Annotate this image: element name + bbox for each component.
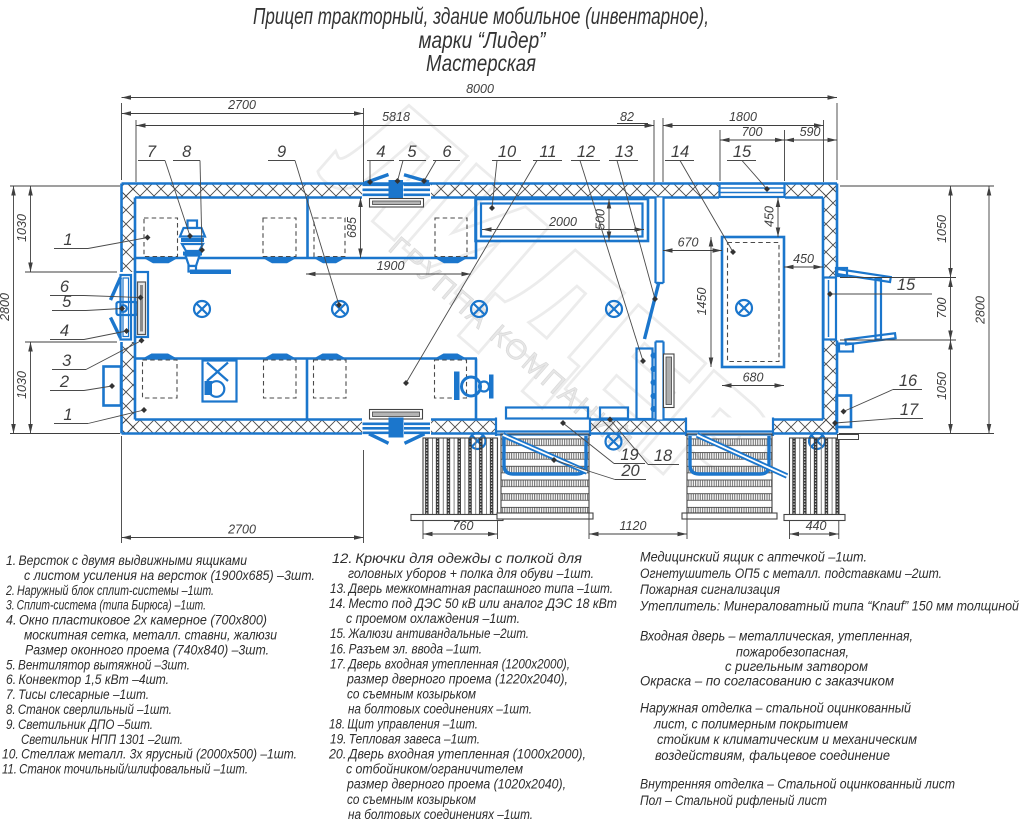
svg-text:1900: 1900 xyxy=(377,259,405,273)
svg-text:11. Станок точильный/шлифоваль: 11. Станок точильный/шлифовальный –1шт. xyxy=(2,762,248,778)
svg-text:1. Версток с двумя выдвижными: 1. Версток с двумя выдвижными ящиками xyxy=(6,553,247,569)
svg-text:с листом усиления на версток (: с листом усиления на версток (1900х685) … xyxy=(24,568,315,584)
svg-text:7. Тисы слесарные –1шт.: 7. Тисы слесарные –1шт. xyxy=(6,687,149,703)
svg-text:Мастерская: Мастерская xyxy=(426,50,536,76)
svg-text:лист, с полимерным покрытием: лист, с полимерным покрытием xyxy=(653,717,848,733)
svg-text:Размер оконного проема (740х84: Размер оконного проема (740х840) –3шт. xyxy=(25,642,269,658)
svg-text:8000: 8000 xyxy=(466,82,494,96)
svg-text:Прицеп тракторный, здание моби: Прицеп тракторный, здание мобильное (инв… xyxy=(253,3,709,29)
svg-text:4: 4 xyxy=(376,143,385,161)
svg-text:20. Дверь входная утепленная (: 20. Дверь входная утепленная (1000х2000)… xyxy=(328,747,586,763)
svg-text:2800: 2800 xyxy=(0,293,12,322)
svg-text:18. Щит управления –1шт.: 18. Щит управления –1шт. xyxy=(329,717,478,733)
svg-text:1030: 1030 xyxy=(15,371,29,399)
svg-text:1120: 1120 xyxy=(620,519,647,533)
svg-text:Окраска – по согласованию с за: Окраска – по согласованию с заказчиком xyxy=(640,674,894,690)
svg-text:4. Окно пластиковое 2х камерно: 4. Окно пластиковое 2х камерное (700х800… xyxy=(6,613,267,629)
svg-text:440: 440 xyxy=(806,519,827,533)
svg-text:13: 13 xyxy=(615,143,634,161)
svg-text:1: 1 xyxy=(63,406,72,424)
svg-text:5: 5 xyxy=(62,293,72,311)
svg-text:6. Конвектор 1,5 кВт –4шт.: 6. Конвектор 1,5 кВт –4шт. xyxy=(6,672,169,688)
svg-text:20: 20 xyxy=(620,462,640,480)
svg-text:1800: 1800 xyxy=(729,110,757,124)
svg-text:670: 670 xyxy=(678,236,699,250)
svg-text:82: 82 xyxy=(620,110,634,124)
svg-text:5818: 5818 xyxy=(382,110,410,124)
svg-text:Медицинский ящик с аптечкой –1: Медицинский ящик с аптечкой –1шт. xyxy=(640,550,867,566)
svg-text:Пожарная сигнализация: Пожарная сигнализация xyxy=(640,582,780,598)
svg-text:700: 700 xyxy=(742,125,763,139)
svg-text:18: 18 xyxy=(654,447,673,465)
svg-text:17. Дверь входная утепленная (: 17. Дверь входная утепленная (1200х2000)… xyxy=(330,656,570,672)
svg-text:8: 8 xyxy=(182,143,192,161)
svg-text:Светильник НПП 1301 –2шт.: Светильник НПП 1301 –2шт. xyxy=(21,732,183,748)
svg-text:16: 16 xyxy=(899,372,918,390)
svg-text:с проемом охлаждения –1шт.: с проемом охлаждения –1шт. xyxy=(346,611,520,627)
svg-text:2. Наружный блок сплит-системы: 2. Наружный блок сплит-системы –1шт. xyxy=(5,583,214,599)
svg-text:на болтовых соединениях –1шт.: на болтовых соединениях –1шт. xyxy=(348,807,533,823)
svg-text:10: 10 xyxy=(498,143,517,161)
svg-text:размер дверного проема (1220х2: размер дверного проема (1220х2040), xyxy=(346,671,568,687)
svg-text:8. Станок сверлильный –1шт.: 8. Станок сверлильный –1шт. xyxy=(6,702,172,718)
svg-text:15: 15 xyxy=(733,143,752,161)
svg-text:Пол – Стальной рифленый лист: Пол – Стальной рифленый лист xyxy=(640,793,827,809)
svg-text:450: 450 xyxy=(793,252,814,266)
svg-text:воздействиям, фальцевое соедин: воздействиям, фальцевое соединение xyxy=(655,748,890,764)
svg-text:17: 17 xyxy=(900,401,919,419)
svg-text:2800: 2800 xyxy=(974,296,988,325)
svg-text:1050: 1050 xyxy=(935,372,949,400)
svg-text:2: 2 xyxy=(59,373,69,391)
svg-text:4: 4 xyxy=(60,322,69,340)
svg-text:на болтовых соединениях –1шт.: на болтовых соединениях –1шт. xyxy=(348,702,532,718)
svg-text:19. Тепловая завеса –1шт.: 19. Тепловая завеса –1шт. xyxy=(330,732,480,748)
svg-text:размер дверного проема (1020х2: размер дверного проема (1020х2040), xyxy=(346,777,566,793)
svg-text:590: 590 xyxy=(800,125,821,139)
svg-text:со съемным козырьком: со съемным козырьком xyxy=(347,686,476,702)
svg-text:Внутренняя отделка – Стальной: Внутренняя отделка – Стальной оцинкованн… xyxy=(640,777,955,793)
svg-text:450: 450 xyxy=(763,206,777,227)
svg-text:5. Вентилятор вытяжной –3шт.: 5. Вентилятор вытяжной –3шт. xyxy=(6,657,190,673)
svg-text:Утеплитель: Минераловатный тип: Утеплитель: Минераловатный типа “Knauf” … xyxy=(639,599,1019,615)
svg-text:1030: 1030 xyxy=(15,214,29,242)
svg-text:со съемным козырьком: со съемным козырьком xyxy=(347,792,476,808)
svg-text:16. Разъем эл. ввода –1шт.: 16. Разъем эл. ввода –1шт. xyxy=(330,641,482,657)
svg-text:с отбойником/ограничителем: с отбойником/ограничителем xyxy=(346,762,523,778)
svg-text:3. Сплит-система (типа Бирюса): 3. Сплит-система (типа Бирюса) –1шт. xyxy=(6,598,206,614)
svg-text:15. Жалюзи антивандальные –2шт: 15. Жалюзи антивандальные –2шт. xyxy=(330,626,529,642)
svg-text:Входная дверь – металлическая,: Входная дверь – металлическая, утепленна… xyxy=(640,629,913,645)
svg-text:13. Дверь межкомнатная распашн: 13. Дверь межкомнатная распашного типа –… xyxy=(330,581,613,597)
svg-text:Наружная отделка – стальной оц: Наружная отделка – стальной оцинкованный xyxy=(640,701,911,717)
svg-text:стойким к климатическим и меха: стойким к климатическим и механическим xyxy=(657,732,917,748)
svg-text:3: 3 xyxy=(62,352,72,370)
svg-text:10. Стеллаж металл. 3х ярусный: 10. Стеллаж металл. 3х ярусный (2000х500… xyxy=(2,747,297,763)
svg-text:680: 680 xyxy=(743,371,764,385)
svg-text:Огнетушитель ОП5 с металл. под: Огнетушитель ОП5 с металл. подставками –… xyxy=(640,566,942,582)
svg-text:14. Место под ДЭС 50 кВ или ан: 14. Место под ДЭС 50 кВ или аналог ДЭС 1… xyxy=(329,596,617,612)
svg-text:6: 6 xyxy=(442,143,452,161)
svg-text:12. Крючки для одежды с полкой: 12. Крючки для одежды с полкой для xyxy=(332,551,582,567)
svg-text:15: 15 xyxy=(897,276,916,294)
svg-text:9. Светильник ДПО –5шт.: 9. Светильник ДПО –5шт. xyxy=(6,717,153,733)
svg-text:москитная сетка, металл. ставн: москитная сетка, металл. ставни, жалюзи xyxy=(24,628,277,644)
svg-text:5: 5 xyxy=(407,143,417,161)
svg-text:700: 700 xyxy=(935,298,949,319)
svg-text:2700: 2700 xyxy=(227,98,256,112)
svg-text:1: 1 xyxy=(63,231,72,249)
svg-text:1050: 1050 xyxy=(935,215,949,243)
svg-text:1450: 1450 xyxy=(695,288,709,316)
svg-text:14: 14 xyxy=(671,143,689,161)
svg-text:760: 760 xyxy=(453,519,474,533)
svg-text:9: 9 xyxy=(277,143,286,161)
svg-text:12: 12 xyxy=(577,143,595,161)
svg-text:2000: 2000 xyxy=(548,215,577,229)
svg-text:685: 685 xyxy=(345,217,359,238)
svg-text:2700: 2700 xyxy=(227,523,256,537)
svg-text:7: 7 xyxy=(147,143,157,161)
svg-text:головных уборов + полка для об: головных уборов + полка для обуви –1шт. xyxy=(348,566,594,582)
svg-text:11: 11 xyxy=(539,143,556,161)
